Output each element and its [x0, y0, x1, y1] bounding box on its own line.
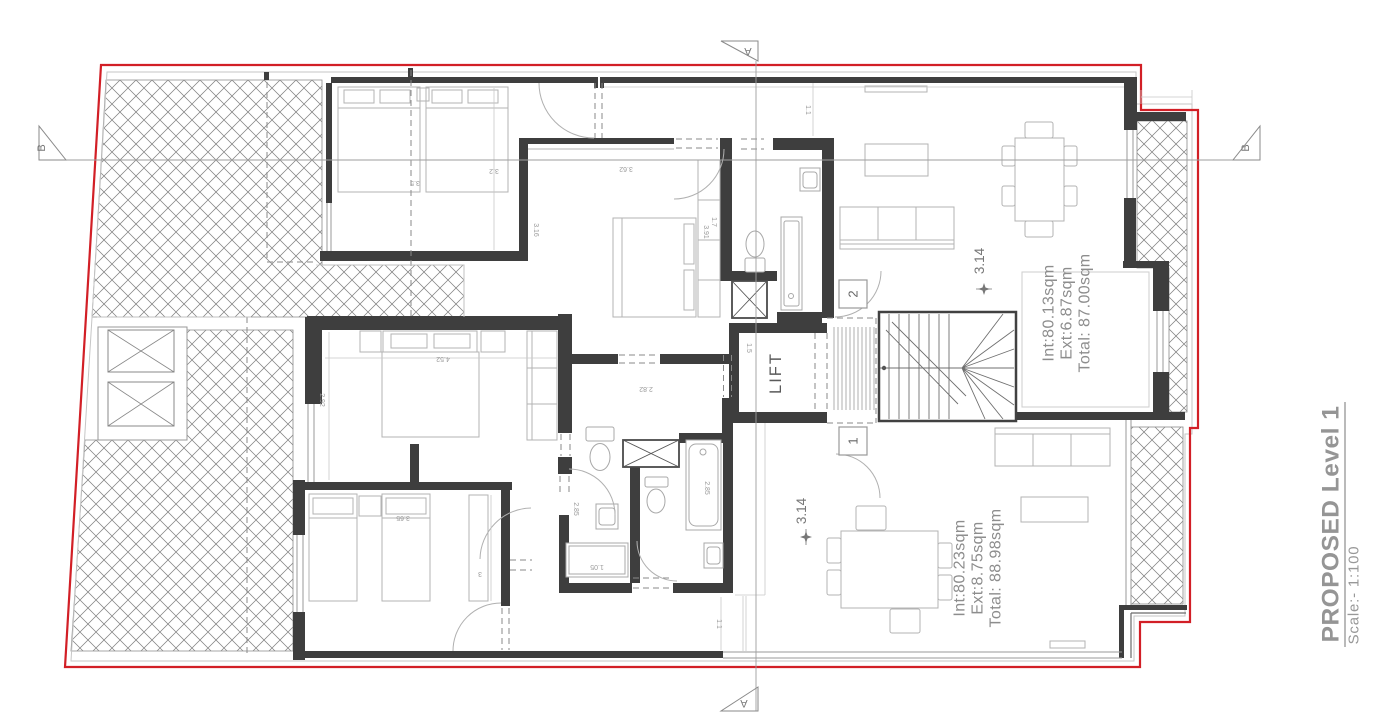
- svg-text:Ext:8.75sqm: Ext:8.75sqm: [970, 521, 987, 614]
- svg-text:3.5: 3.5: [410, 179, 420, 186]
- svg-text:3: 3: [478, 570, 482, 577]
- svg-text:B: B: [1240, 144, 1252, 151]
- svg-text:1.7: 1.7: [710, 217, 717, 227]
- svg-text:3.91: 3.91: [702, 225, 709, 239]
- svg-text:Total: 87.00sqm: Total: 87.00sqm: [1077, 254, 1094, 373]
- svg-text:Scale:- 1:100: Scale:- 1:100: [1346, 546, 1363, 645]
- svg-text:2: 2: [846, 290, 861, 297]
- svg-text:B: B: [36, 144, 48, 151]
- svg-text:1.5: 1.5: [745, 343, 752, 353]
- svg-text:3.65: 3.65: [396, 514, 410, 521]
- svg-text:A: A: [744, 45, 752, 57]
- svg-text:2.85: 2.85: [703, 481, 710, 495]
- svg-text:1: 1: [846, 437, 861, 444]
- svg-text:2.85: 2.85: [572, 502, 579, 516]
- svg-text:4.52: 4.52: [436, 355, 450, 362]
- svg-text:PROPOSED Level 1: PROPOSED Level 1: [1318, 406, 1345, 643]
- svg-text:Int:80.13sqm: Int:80.13sqm: [1041, 264, 1058, 361]
- svg-text:3.62: 3.62: [619, 165, 633, 172]
- svg-text:1.1: 1.1: [715, 619, 722, 629]
- svg-text:Int:80.23sqm: Int:80.23sqm: [952, 519, 969, 616]
- svg-text:LIFT: LIFT: [767, 352, 785, 394]
- svg-text:2.92: 2.92: [318, 393, 325, 407]
- svg-text:3.14: 3.14: [972, 247, 987, 274]
- svg-text:1.1: 1.1: [804, 105, 811, 115]
- svg-text:A: A: [740, 697, 748, 709]
- svg-text:1.05: 1.05: [590, 563, 604, 570]
- svg-text:Total: 88.98sqm: Total: 88.98sqm: [988, 509, 1005, 628]
- svg-text:3.16: 3.16: [532, 223, 539, 237]
- svg-text:3.2: 3.2: [489, 167, 499, 174]
- svg-text:2.82: 2.82: [639, 385, 653, 392]
- svg-text:Ext:6.87sqm: Ext:6.87sqm: [1059, 266, 1076, 359]
- svg-text:3.14: 3.14: [794, 497, 809, 524]
